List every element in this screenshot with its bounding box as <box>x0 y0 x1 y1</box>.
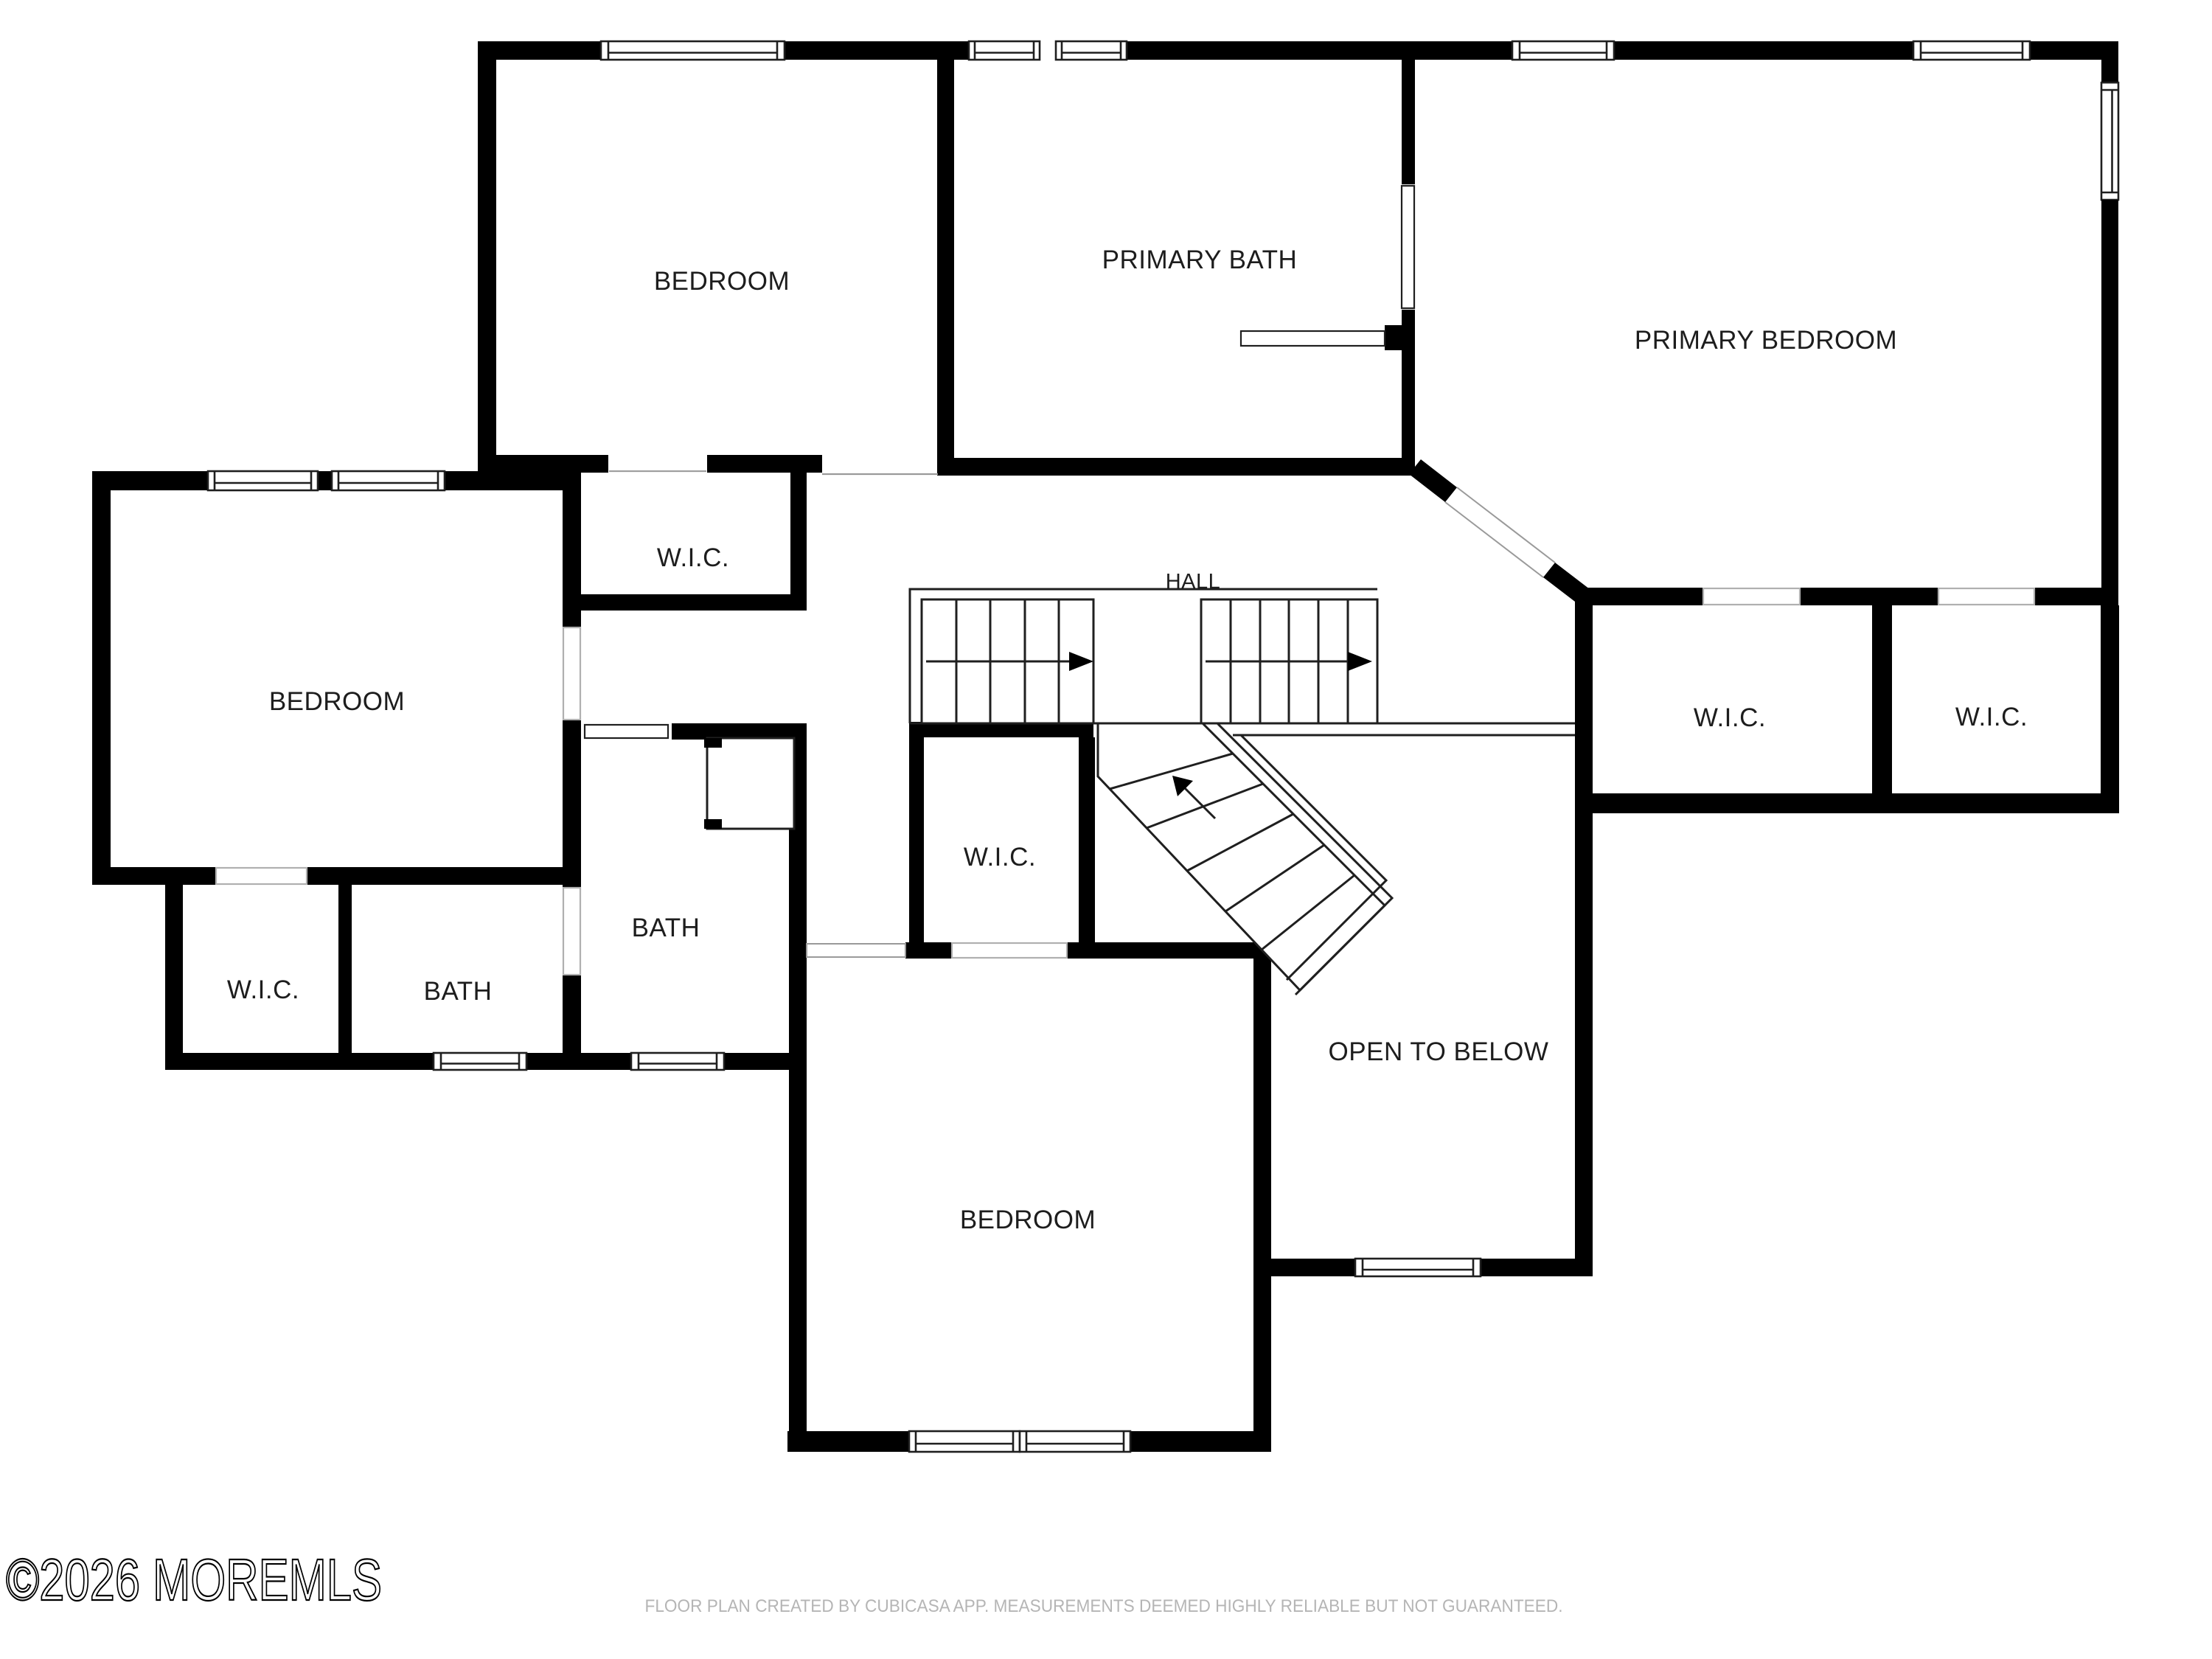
svg-text:HALL: HALL <box>1166 570 1221 594</box>
svg-text:W.I.C.: W.I.C. <box>227 975 299 1004</box>
svg-text:BATH: BATH <box>424 977 493 1006</box>
svg-text:BEDROOM: BEDROOM <box>960 1206 1096 1234</box>
svg-text:PRIMARY BEDROOM: PRIMARY BEDROOM <box>1635 326 1897 355</box>
svg-text:FLOOR PLAN CREATED BY CUBICASA: FLOOR PLAN CREATED BY CUBICASA APP. MEAS… <box>645 1596 1563 1616</box>
svg-text:W.I.C.: W.I.C. <box>1694 703 1766 732</box>
svg-text:W.I.C.: W.I.C. <box>1955 703 2028 731</box>
svg-text:BEDROOM: BEDROOM <box>269 687 405 716</box>
svg-text:W.I.C.: W.I.C. <box>964 843 1036 872</box>
svg-text:PRIMARY BATH: PRIMARY BATH <box>1102 246 1298 274</box>
svg-text:W.I.C.: W.I.C. <box>657 543 729 572</box>
svg-text:BATH: BATH <box>632 914 700 942</box>
svg-text:OPEN TO BELOW: OPEN TO BELOW <box>1329 1037 1549 1066</box>
svg-text:BEDROOM: BEDROOM <box>654 267 790 296</box>
svg-text:©2026 MOREMLS: ©2026 MOREMLS <box>6 1547 382 1613</box>
